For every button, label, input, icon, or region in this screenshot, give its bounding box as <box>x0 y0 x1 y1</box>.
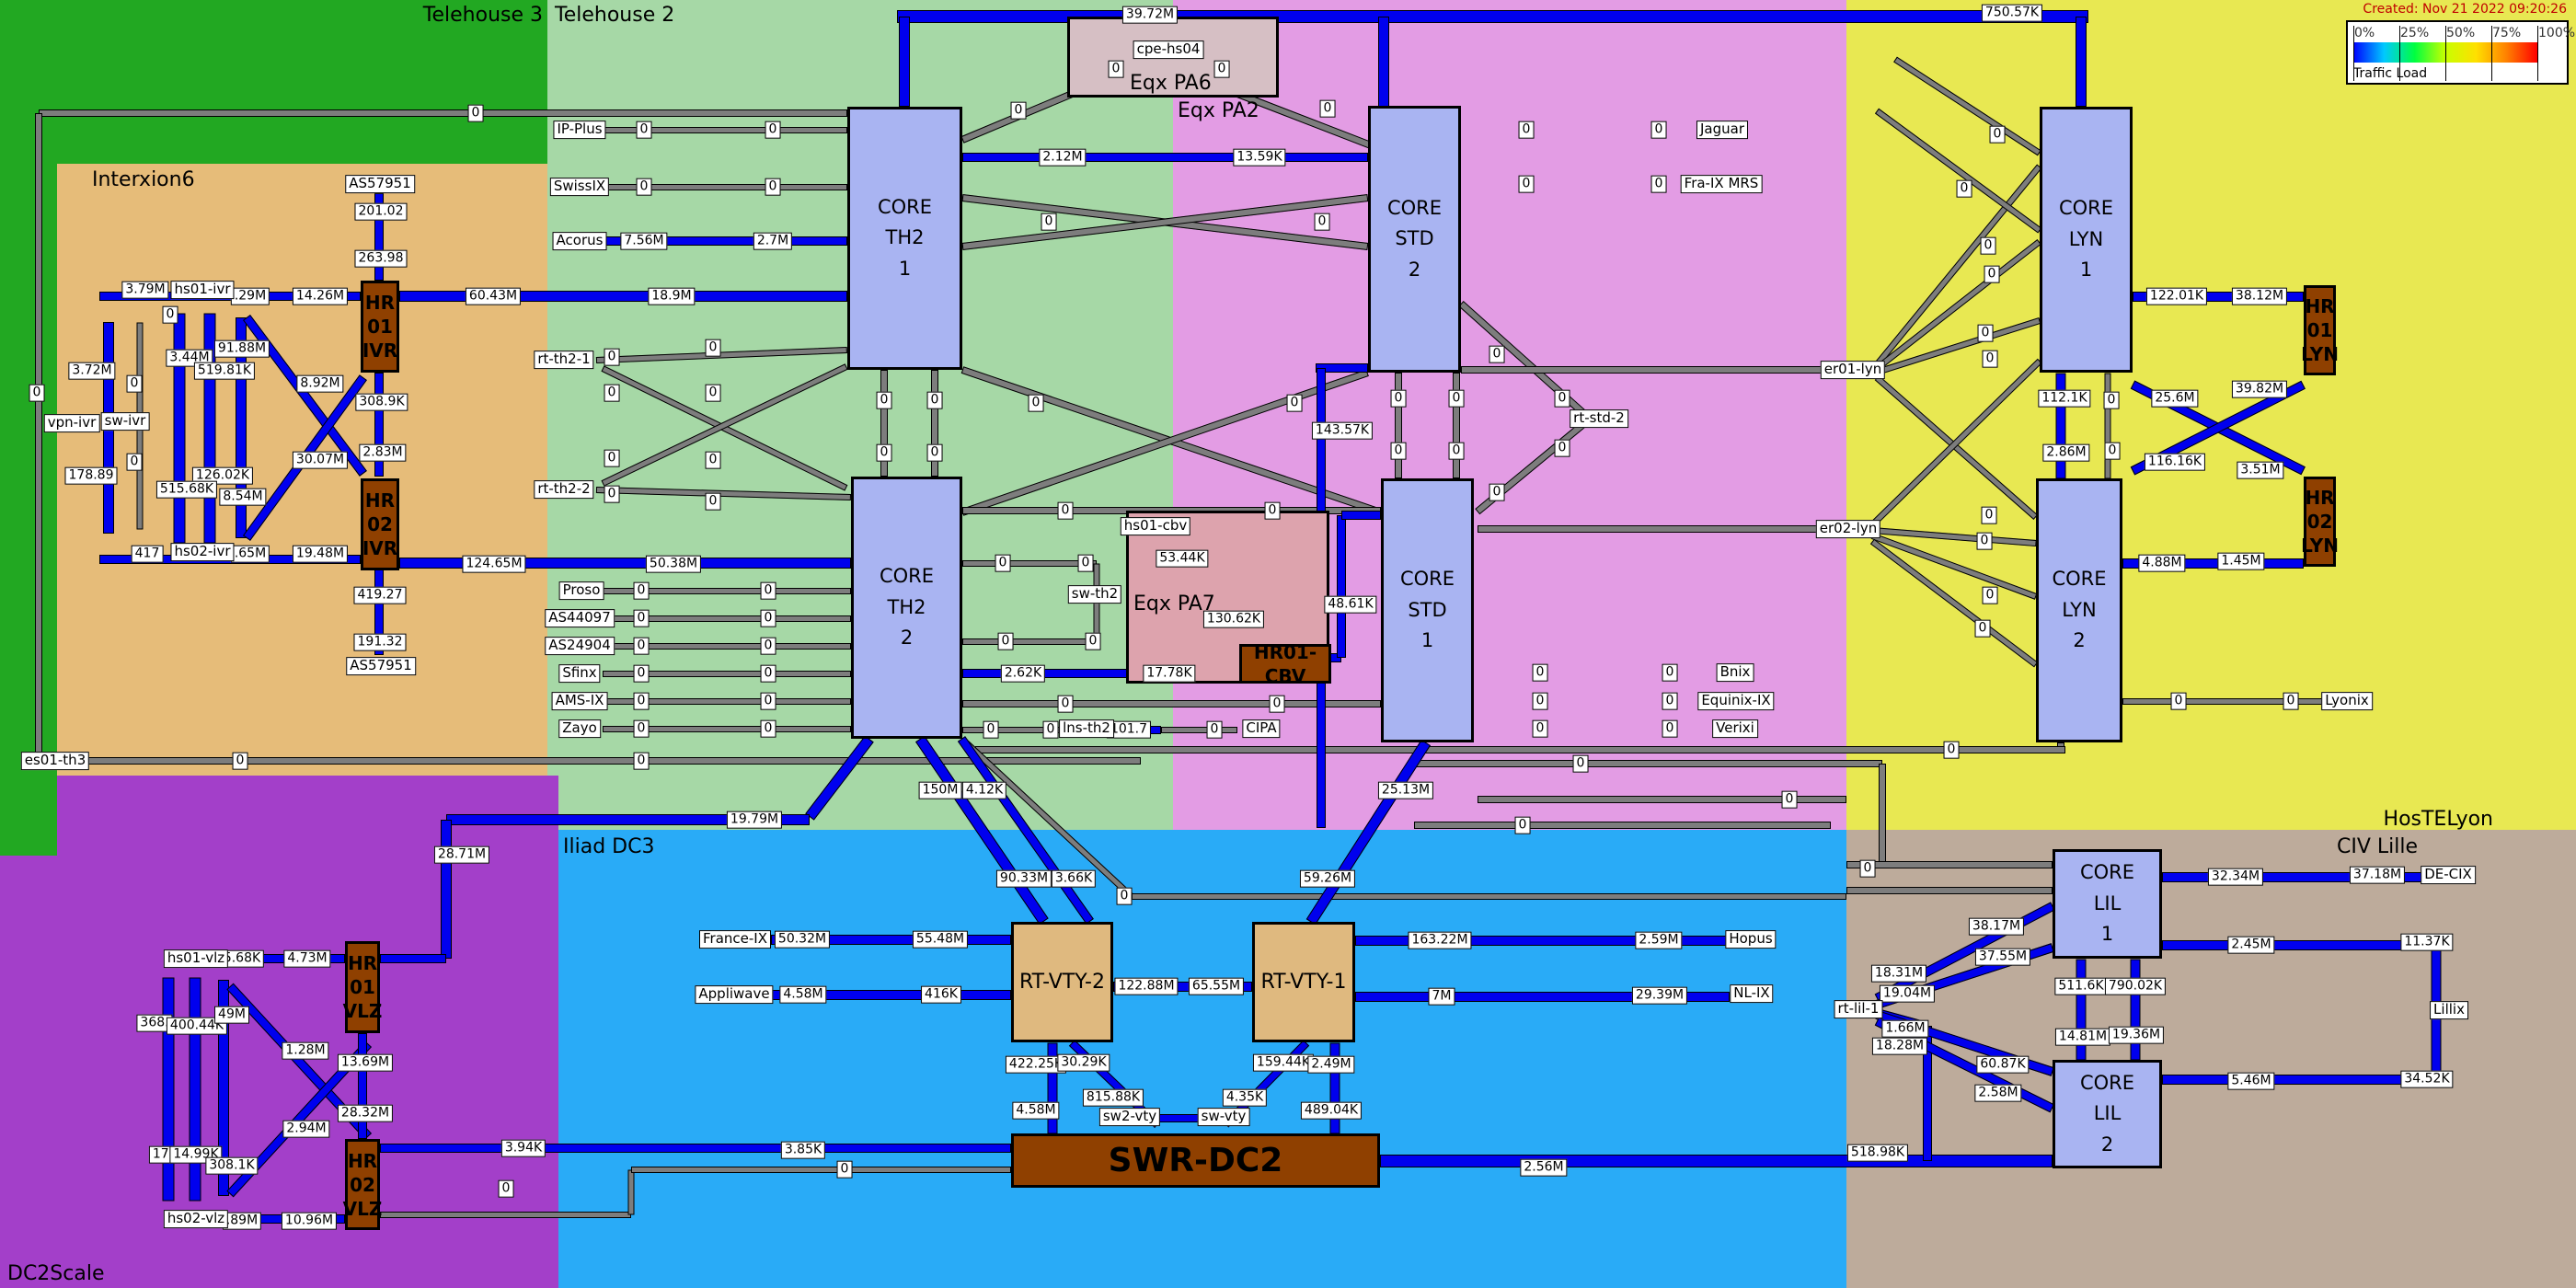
node-label-Equinix-IX[interactable]: Equinix-IX <box>1697 692 1774 710</box>
link-43[interactable] <box>1161 727 1237 733</box>
device-hr01-vlz[interactable]: HR01VLZ <box>345 941 380 1033</box>
link-79[interactable] <box>1414 760 1882 767</box>
link-value[interactable]: 39.82M <box>2232 381 2287 398</box>
link-value[interactable]: 30.29K <box>1057 1054 1110 1072</box>
node-label-Lyonix[interactable]: Lyonix <box>2321 692 2373 710</box>
node-label-rt-th2-1[interactable]: rt-th2-1 <box>534 351 593 369</box>
link-value[interactable]: 122.01K <box>2146 288 2207 305</box>
link-value[interactable]: 91.88M <box>214 340 270 358</box>
link-value[interactable]: 750.57K <box>1982 5 2042 22</box>
link-110[interactable] <box>631 1167 1011 1173</box>
link-value[interactable]: 2.45M <box>2227 937 2274 954</box>
link-value[interactable]: 18.28M <box>1872 1038 1927 1055</box>
link-value[interactable]: 0 <box>1533 693 1548 710</box>
link-value[interactable]: 0 <box>877 444 892 462</box>
link-value[interactable]: 0 <box>706 452 721 469</box>
link-83[interactable] <box>1846 861 2053 868</box>
link-value[interactable]: 0 <box>706 385 721 402</box>
link-value[interactable]: 0 <box>927 444 943 462</box>
link-value[interactable]: 0 <box>1944 742 1960 759</box>
link-value[interactable]: 191.32 <box>354 634 407 651</box>
link-value[interactable]: 0 <box>1043 721 1059 739</box>
node-label-AS24904[interactable]: AS24904 <box>545 637 615 655</box>
link-value[interactable]: 519.81K <box>194 362 255 380</box>
link-value[interactable]: 790.02K <box>2105 978 2166 995</box>
link-value[interactable]: 60.43M <box>466 288 521 305</box>
node-label-Verixi[interactable]: Verixi <box>1712 719 1758 738</box>
device-core-lil-1[interactable]: CORELIL1 <box>2053 849 2162 959</box>
link-value[interactable]: 39.72M <box>1122 6 1178 24</box>
node-label-hs01-cbv[interactable]: hs01-cbv <box>1121 517 1190 535</box>
link-value[interactable]: 34.52K <box>2400 1071 2453 1088</box>
link-value[interactable]: 0 <box>765 121 781 139</box>
link-value[interactable]: 416K <box>921 986 961 1004</box>
link-value[interactable]: 4.88M <box>2138 555 2185 572</box>
link-value[interactable]: 0 <box>1320 100 1336 118</box>
link-59[interactable] <box>1478 525 1826 533</box>
node-label-er02-lyn[interactable]: er02-lyn <box>1816 520 1880 538</box>
link-value[interactable]: 0 <box>1651 121 1667 139</box>
link-value[interactable]: 49M <box>214 1006 249 1024</box>
link-value[interactable]: 0 <box>1533 720 1548 738</box>
link-value[interactable]: 0 <box>1265 502 1281 520</box>
link-value[interactable]: 0 <box>1041 213 1057 231</box>
link-value[interactable]: 0 <box>1449 390 1465 408</box>
link-value[interactable]: 0 <box>604 349 620 366</box>
node-label-AS44097[interactable]: AS44097 <box>545 609 615 627</box>
node-label-hs01-vlz[interactable]: hs01-vlz <box>164 949 228 968</box>
link-value[interactable]: 0 <box>1982 507 1997 524</box>
link-100[interactable] <box>163 977 175 1201</box>
node-label-NL-IX[interactable]: NL-IX <box>1730 984 1773 1003</box>
link-value[interactable]: 53.44K <box>1156 550 1208 568</box>
link-value[interactable]: 419.27 <box>354 587 407 604</box>
link-value[interactable]: 4.73M <box>283 950 330 968</box>
link-value[interactable]: 37.18M <box>2350 867 2405 884</box>
link-value[interactable]: 38.17M <box>1969 918 2024 936</box>
link-55[interactable] <box>1453 373 1460 478</box>
link-value[interactable]: 4.35K <box>1223 1089 1267 1107</box>
link-value[interactable]: 14.26M <box>293 288 348 305</box>
link-105[interactable] <box>358 1033 367 1139</box>
node-label-AS57951[interactable]: AS57951 <box>345 175 415 193</box>
link-value[interactable]: 0 <box>634 753 650 770</box>
link-value[interactable]: 14.81M <box>2055 1029 2110 1046</box>
link-value[interactable]: 0 <box>765 178 781 196</box>
link-value[interactable]: 3.66K <box>1052 870 1096 888</box>
node-label-sw2-vty[interactable]: sw2-vty <box>1099 1108 1160 1126</box>
link-value[interactable]: 0 <box>761 638 776 655</box>
link-value[interactable]: 0 <box>1981 237 1996 255</box>
link-value[interactable]: 3.94K <box>501 1140 546 1157</box>
link-value[interactable]: 112.1K <box>2038 390 2090 408</box>
link-value[interactable]: 37.55M <box>1975 949 2030 966</box>
link-value[interactable]: 4.12K <box>962 782 1006 799</box>
link-value[interactable]: 0 <box>2283 693 2299 710</box>
link-value[interactable]: 0 <box>634 610 650 627</box>
link-value[interactable]: 0 <box>1990 126 2006 144</box>
link-111[interactable] <box>1380 1155 2053 1167</box>
device-rt-vty-1[interactable]: RT-VTY-1 <box>1252 922 1355 1042</box>
link-value[interactable]: 0 <box>761 665 776 683</box>
link-72[interactable] <box>2122 698 2337 705</box>
link-109[interactable] <box>628 1169 635 1214</box>
link-value[interactable]: 0 <box>127 454 143 471</box>
link-value[interactable]: 0 <box>837 1161 853 1179</box>
device-hr02-lyn[interactable]: HR02LYN <box>2304 477 2336 567</box>
link-value[interactable]: 2.83M <box>359 444 406 462</box>
link-value[interactable]: 13.69M <box>338 1054 393 1072</box>
node-label-France-IX[interactable]: France-IX <box>699 930 771 949</box>
link-value[interactable]: 0 <box>634 665 650 683</box>
node-label-Zayo[interactable]: Zayo <box>558 719 601 738</box>
link-94[interactable] <box>1132 893 1846 900</box>
link-value[interactable]: 308.9K <box>355 394 408 411</box>
link-value[interactable]: 29.39M <box>1632 987 1687 1005</box>
link-value[interactable]: 2.86M <box>2042 444 2089 462</box>
link-value[interactable]: 2.58M <box>1974 1085 2021 1102</box>
link-99[interactable] <box>380 954 446 963</box>
node-label-Appliwave[interactable]: Appliwave <box>695 985 773 1004</box>
device-core-lil-2[interactable]: CORELIL2 <box>2053 1060 2162 1168</box>
device-label: RT-VTY-1 <box>1260 971 1346 994</box>
link-value[interactable]: 178.89 <box>65 467 118 485</box>
link-value[interactable]: 11.37K <box>2400 934 2453 951</box>
link-value[interactable]: 124.65M <box>462 556 525 573</box>
link-value[interactable]: .89M <box>223 1213 261 1230</box>
node-label-SwissIX[interactable]: SwissIX <box>550 178 609 196</box>
link-value[interactable]: 0 <box>1978 325 1994 342</box>
link-value[interactable]: 0 <box>1058 502 1074 520</box>
link-value[interactable]: 0 <box>761 582 776 600</box>
link-value[interactable]: 150M <box>919 782 962 799</box>
link-value[interactable]: 0 <box>1078 555 1094 572</box>
link-107[interactable] <box>380 1144 1011 1153</box>
link-value[interactable]: 0 <box>1519 121 1535 139</box>
link-value[interactable]: 0 <box>1984 266 2000 283</box>
link-value[interactable]: 815.88K <box>1083 1089 1144 1107</box>
link-73[interactable] <box>2056 373 2066 478</box>
link-value[interactable]: 0 <box>2105 443 2121 460</box>
link-value[interactable]: 489.04K <box>1301 1102 1362 1120</box>
link-38[interactable] <box>962 560 1097 567</box>
device-label: 02 <box>367 512 393 536</box>
link-value[interactable]: 0 <box>1287 395 1303 412</box>
link-value[interactable]: 0 <box>2171 693 2187 710</box>
device-hr01-ivr[interactable]: HR01IVR <box>361 281 399 373</box>
link-value[interactable]: 0 <box>604 486 620 503</box>
link-value[interactable]: 0 <box>995 555 1011 572</box>
link-value[interactable]: 18.9M <box>648 288 695 305</box>
link-value[interactable]: 19.48M <box>293 546 348 563</box>
region-title-interxion6: Interxion6 <box>92 168 195 191</box>
device-rt-vty-2[interactable]: RT-VTY-2 <box>1011 922 1113 1042</box>
link-value[interactable]: 0 <box>233 753 248 770</box>
link-3[interactable] <box>2076 17 2087 107</box>
link-value[interactable]: 0 <box>1489 346 1505 363</box>
link-78[interactable] <box>975 746 2065 753</box>
device-swr-dc2[interactable]: SWR-DC2 <box>1011 1133 1380 1188</box>
link-value[interactable]: 5.46M <box>2227 1073 2274 1090</box>
link-value[interactable]: 0 <box>998 633 1014 650</box>
link-value[interactable]: 0 <box>1983 351 1998 368</box>
node-label-Lillix[interactable]: Lillix <box>2430 1001 2468 1019</box>
link-value[interactable]: 308.1K <box>205 1157 258 1175</box>
link-value[interactable]: 0 <box>1983 587 1998 604</box>
link-value[interactable]: 0 <box>1086 633 1101 650</box>
node-label-vpn-ivr[interactable]: vpn-ivr <box>44 414 100 432</box>
link-value[interactable]: 0 <box>637 121 652 139</box>
link-value[interactable]: 0 <box>1315 213 1330 231</box>
link-value[interactable]: 48.61K <box>1324 596 1376 614</box>
link-value[interactable]: 0 <box>1662 720 1678 738</box>
link-value[interactable]: 0 <box>127 375 143 393</box>
link-value[interactable]: 2.62K <box>1001 665 1045 683</box>
link-value[interactable]: 0 <box>927 392 943 409</box>
link-value[interactable]: 0 <box>634 720 650 738</box>
link-value[interactable]: 0 <box>706 339 721 357</box>
node-label-CIPA[interactable]: CIPA <box>1242 719 1280 738</box>
link-74[interactable] <box>2105 373 2111 478</box>
link-value[interactable]: 2.7M <box>753 233 792 250</box>
link-value[interactable]: 0 <box>1782 791 1798 809</box>
link-5[interactable] <box>35 113 42 761</box>
link-86[interactable] <box>1337 515 1346 658</box>
link-value[interactable]: 515.68K <box>156 481 217 499</box>
device-label: LYN <box>2062 595 2096 627</box>
link-value[interactable]: 28.32M <box>338 1105 393 1122</box>
link-value[interactable]: 130.62K <box>1203 611 1264 628</box>
link-value[interactable]: 0 <box>1975 620 1991 638</box>
node-label-cpe-hs04[interactable]: cpe-hs04 <box>1133 40 1204 59</box>
link-value[interactable]: 0 <box>634 582 650 600</box>
link-value[interactable]: 30.07M <box>293 452 348 469</box>
link-value[interactable]: 7.56M <box>620 233 667 250</box>
link-value[interactable]: 0 <box>163 306 178 324</box>
node-label-Bnix[interactable]: Bnix <box>1717 663 1754 682</box>
link-value[interactable]: 60.87K <box>1976 1056 2029 1074</box>
link-value[interactable]: 0 <box>1207 721 1223 739</box>
link-value[interactable]: 1.28M <box>282 1042 328 1060</box>
node-label-Acorus[interactable]: Acorus <box>553 232 607 250</box>
link-value[interactable]: 32.34M <box>2208 868 2263 886</box>
link-value[interactable]: 0 <box>1011 102 1027 120</box>
device-label: STD <box>1408 595 1446 627</box>
node-label-Hopus[interactable]: Hopus <box>1725 930 1776 949</box>
link-value[interactable]: 3.51M <box>2237 462 2283 479</box>
device-core-th2-2[interactable]: CORETH22 <box>851 477 962 739</box>
link-125[interactable] <box>2131 959 2141 1060</box>
link-value[interactable]: 19.79M <box>727 811 782 829</box>
link-value[interactable]: 8.54M <box>219 489 266 506</box>
link-value[interactable]: 2.94M <box>282 1121 329 1138</box>
link-value[interactable]: 1.45M <box>2217 553 2264 570</box>
device-core-th2-1[interactable]: CORETH21 <box>847 107 962 370</box>
link-value[interactable]: 417 <box>132 546 164 563</box>
link-value[interactable]: 4.58M <box>779 986 826 1004</box>
link-value[interactable]: 0 <box>1489 484 1505 501</box>
link-value[interactable]: 0 <box>637 178 652 196</box>
link-value[interactable]: 0 <box>761 610 776 627</box>
link-value[interactable]: 0 <box>499 1180 514 1198</box>
link-value[interactable]: 65.55M <box>1189 978 1244 995</box>
link-80[interactable] <box>1879 764 1886 865</box>
device-core-lyn-1[interactable]: CORELYN1 <box>2040 107 2133 373</box>
link-value[interactable]: 0 <box>1860 860 1876 878</box>
link-value[interactable]: 0 <box>761 720 776 738</box>
link-24[interactable] <box>962 153 1368 162</box>
link-value[interactable]: 518.98K <box>1847 1144 1908 1162</box>
link-108[interactable] <box>380 1212 631 1218</box>
link-value[interactable]: 0 <box>1519 176 1535 193</box>
node-label-IP-Plus[interactable]: IP-Plus <box>553 121 605 139</box>
node-label-es01-th3[interactable]: es01-th3 <box>21 752 89 770</box>
node-label-sw-ivr[interactable]: sw-ivr <box>101 412 150 431</box>
link-87[interactable] <box>1341 511 1381 520</box>
link-value[interactable]: 0 <box>706 493 721 511</box>
link-1[interactable] <box>899 17 910 107</box>
link-value[interactable]: 0 <box>1662 693 1678 710</box>
link-value[interactable]: 3.85K <box>781 1142 825 1159</box>
link-value[interactable]: 55.48M <box>913 931 968 949</box>
device-core-lyn-2[interactable]: CORELYN2 <box>2036 478 2122 742</box>
link-84[interactable] <box>1846 887 2053 894</box>
node-label-lns-th2[interactable]: lns-th2 <box>1059 719 1114 738</box>
link-value[interactable]: 18.31M <box>1871 965 1926 983</box>
node-label-rt-std-2[interactable]: rt-std-2 <box>1570 409 1628 428</box>
device-hr02-vlz[interactable]: HR02VLZ <box>345 1139 380 1230</box>
node-label-Fra-IX MRS[interactable]: Fra-IX MRS <box>1681 175 1763 193</box>
link-value[interactable]: 0 <box>1957 180 1972 198</box>
link-value[interactable]: 50.32M <box>775 931 830 949</box>
link-value[interactable]: 19.04M <box>1880 985 1935 1003</box>
link-value[interactable]: 0 <box>634 693 650 710</box>
link-value[interactable]: 0 <box>1533 664 1548 682</box>
link-2[interactable] <box>1378 17 1389 107</box>
link-value[interactable]: 3.79M <box>121 282 168 299</box>
link-101[interactable] <box>190 977 201 1201</box>
link-value[interactable]: 50.38M <box>646 556 701 573</box>
link-value[interactable]: 0 <box>634 638 650 655</box>
link-40[interactable] <box>962 638 1097 645</box>
node-label-AS57951[interactable]: AS57951 <box>346 657 416 675</box>
link-value[interactable]: 4.58M <box>1012 1102 1059 1120</box>
link-value[interactable]: 2.49M <box>1307 1056 1354 1074</box>
device-hr02-ivr[interactable]: HR02IVR <box>361 478 399 570</box>
link-value[interactable]: 0 <box>1449 443 1465 460</box>
link-value[interactable]: 17.78K <box>1143 665 1195 683</box>
node-label-rt-th2-2[interactable]: rt-th2-2 <box>534 480 593 499</box>
link-54[interactable] <box>1395 373 1402 478</box>
link-value[interactable]: 90.33M <box>996 870 1052 888</box>
link-value[interactable]: 13.59K <box>1233 149 1285 167</box>
link-value[interactable]: 0 <box>1555 390 1570 408</box>
link-82[interactable] <box>1414 822 1831 829</box>
device-hr01-cbv[interactable]: HR01-CBV <box>1239 644 1331 684</box>
link-value[interactable]: 511.6K <box>2054 978 2107 995</box>
link-value[interactable]: 0 <box>1270 696 1285 713</box>
link-value[interactable]: 0 <box>1029 395 1044 412</box>
link-value[interactable]: 0 <box>1977 533 1993 550</box>
link-4[interactable] <box>39 109 847 117</box>
node-label-rt-lil-1[interactable]: rt-lil-1 <box>1834 1000 1883 1018</box>
node-label-sw-vty[interactable]: sw-vty <box>1198 1108 1250 1126</box>
node-label-er01-lyn[interactable]: er01-lyn <box>1821 361 1885 379</box>
link-value[interactable]: 0 <box>2104 392 2120 409</box>
link-value[interactable]: 2.12M <box>1039 149 1086 167</box>
link-value[interactable]: 0 <box>29 385 45 402</box>
link-value[interactable]: 0 <box>604 450 620 467</box>
link-value[interactable]: 0 <box>1555 440 1570 457</box>
link-value[interactable]: 0 <box>1573 755 1589 773</box>
node-label-DE-CIX[interactable]: DE-CIX <box>2421 866 2476 884</box>
node-label-hs02-ivr[interactable]: hs02-ivr <box>170 543 234 561</box>
link-value[interactable]: 0 <box>1391 390 1407 408</box>
link-value[interactable]: 201.02 <box>355 203 408 221</box>
link-value[interactable]: 116.16K <box>2145 454 2205 471</box>
node-label-sw-th2[interactable]: sw-th2 <box>1068 585 1121 604</box>
link-13[interactable] <box>174 313 186 543</box>
device-core-std-2[interactable]: CORESTD2 <box>1368 106 1461 373</box>
link-value[interactable]: 19.36M <box>2109 1027 2164 1044</box>
device-hr01-lyn[interactable]: HR01LYN <box>2304 285 2336 375</box>
device-core-std-1[interactable]: CORESTD1 <box>1381 478 1474 742</box>
link-value[interactable]: 3.72M <box>68 362 115 380</box>
link-value[interactable]: 143.57K <box>1312 422 1373 440</box>
link-value[interactable]: 0 <box>761 693 776 710</box>
link-value[interactable]: 0 <box>1515 817 1531 834</box>
link-value[interactable]: 0 <box>1651 176 1667 193</box>
link-value[interactable]: 0 <box>1117 888 1133 905</box>
link-value[interactable]: 122.88M <box>1114 978 1178 995</box>
node-label-hs02-vlz[interactable]: hs02-vlz <box>164 1210 228 1228</box>
link-value[interactable]: 8.92M <box>296 375 343 393</box>
link-value[interactable]: 0 <box>1109 61 1124 78</box>
link-value[interactable]: 1.66M <box>1881 1020 1928 1038</box>
link-value[interactable]: 159.44K <box>1253 1054 1314 1072</box>
link-value[interactable]: 0 <box>877 392 892 409</box>
link-value[interactable]: 10.96M <box>282 1213 337 1230</box>
link-value[interactable]: 0 <box>604 385 620 402</box>
link-value[interactable]: 25.13M <box>1378 782 1433 799</box>
node-label-Jaguar[interactable]: Jaguar <box>1696 121 1748 139</box>
link-value[interactable]: .29M <box>231 288 270 305</box>
link-value[interactable]: 2.56M <box>1520 1159 1567 1177</box>
link-value[interactable]: 263.98 <box>355 250 408 268</box>
link-value[interactable]: 163.22M <box>1408 932 1471 949</box>
link-value[interactable]: 38.12M <box>2232 288 2287 305</box>
node-label-hs01-ivr[interactable]: hs01-ivr <box>170 281 234 299</box>
link-97[interactable] <box>441 820 452 959</box>
node-label-Sfinx[interactable]: Sfinx <box>558 664 600 683</box>
link-value[interactable]: 0 <box>983 721 999 739</box>
node-label-AMS-IX[interactable]: AMS-IX <box>552 692 608 710</box>
region-dc2scale-left <box>0 856 57 1288</box>
link-value[interactable]: 2.59M <box>1635 932 1682 949</box>
link-value[interactable]: .65M <box>231 546 270 563</box>
link-value[interactable]: 25.6M <box>2151 390 2198 408</box>
link-value[interactable]: 0 <box>468 105 484 122</box>
link-value[interactable]: 0 <box>1662 664 1678 682</box>
link-value[interactable]: 0 <box>1214 61 1230 78</box>
link-value[interactable]: 7M <box>1429 988 1455 1006</box>
link-58[interactable] <box>1461 366 1829 374</box>
link-value[interactable]: 28.71M <box>434 846 489 864</box>
node-label-Proso[interactable]: Proso <box>559 581 604 600</box>
link-value[interactable]: 0 <box>1391 443 1407 460</box>
link-value[interactable]: 0 <box>1058 696 1074 713</box>
link-value[interactable]: 59.26M <box>1300 870 1355 888</box>
